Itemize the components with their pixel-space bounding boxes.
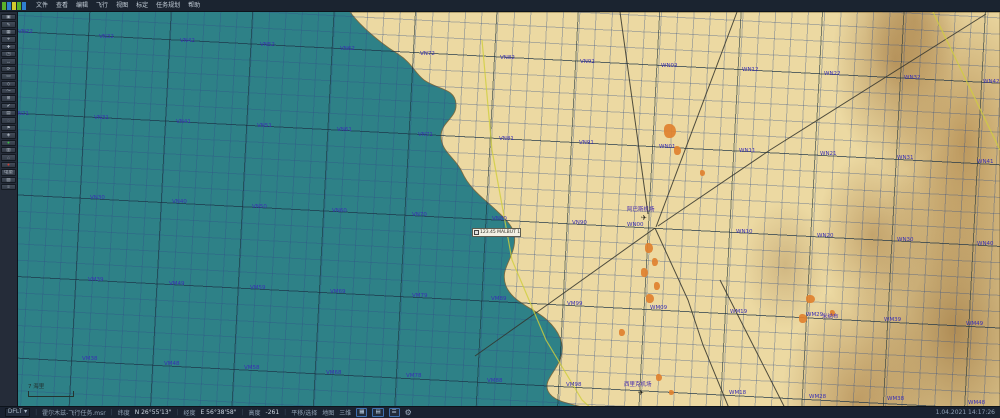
layer-toggle-button[interactable]: ▦	[356, 408, 367, 417]
tool-button[interactable]: ◌	[1, 117, 16, 123]
tool-button[interactable]: ✔	[1, 103, 16, 109]
logo-block	[22, 2, 26, 10]
profile-select[interactable]: DFLT ▾	[5, 408, 30, 417]
map-canvas[interactable]: VN22VN32VN42VN52VN62VN72VN82VN92WN02WN12…	[0, 0, 1000, 418]
map-mode-label: 地图	[322, 408, 334, 417]
tool-button[interactable]: ◳	[1, 51, 16, 57]
divider: |	[111, 409, 113, 416]
menu-item[interactable]: 文件	[32, 0, 52, 12]
tool-button[interactable]: ⊞	[1, 95, 16, 101]
menu-item[interactable]: 标定	[132, 0, 152, 12]
logo-block	[7, 2, 11, 10]
altitude-label: 高度	[249, 408, 261, 417]
tool-button[interactable]: 电量	[1, 169, 16, 175]
app-window: VN22VN32VN42VN52VN62VN72VN82VN92WN02WN12…	[0, 0, 1000, 418]
tool-button[interactable]: ▭	[1, 73, 16, 79]
tool-button[interactable]: ▣	[1, 14, 16, 20]
menu-item[interactable]: 飞行	[92, 0, 112, 12]
longitude-value: E 56°38'58"	[200, 409, 236, 416]
latitude-value: N 26°55'13"	[135, 409, 172, 416]
tool-button[interactable]: ⚑	[1, 125, 16, 131]
cursor-mode-label: 平移/选择	[291, 408, 317, 417]
open-file-name: 霍尔木兹-飞行任务.msr	[42, 408, 106, 417]
grid-toggle-button[interactable]: ▤	[372, 408, 383, 417]
coastline-land-shape	[0, 0, 1000, 418]
tool-button[interactable]: ⟳	[1, 66, 16, 72]
tool-button[interactable]: ●	[1, 162, 16, 168]
tool-button[interactable]: ▥	[1, 147, 16, 153]
datetime: 1.04.2021 14:17:26	[936, 409, 995, 416]
divider: |	[35, 409, 37, 416]
divider: |	[242, 409, 244, 416]
menu-item[interactable]: 任务规划	[152, 0, 184, 12]
tool-button[interactable]: ▨	[1, 177, 16, 183]
tool-button[interactable]: ▤	[1, 110, 16, 116]
tool-button[interactable]: ↔	[1, 58, 16, 64]
tool-button[interactable]: ⌖	[1, 36, 16, 42]
logo-block	[2, 2, 6, 10]
menu-item[interactable]: 编辑	[72, 0, 92, 12]
list-toggle-button[interactable]: ☰	[389, 408, 400, 417]
menu-bar: 文件查看编辑飞行视图标定任务规划帮助	[0, 0, 1000, 12]
logo-block	[17, 2, 21, 10]
tool-button[interactable]: ✚	[1, 44, 16, 50]
logo-block	[12, 2, 16, 10]
menu-item[interactable]: 查看	[52, 0, 72, 12]
tool-button[interactable]: ≡	[1, 184, 16, 190]
main-menu: 文件查看编辑飞行视图标定任务规划帮助	[32, 0, 204, 12]
longitude-label: 经度	[183, 408, 195, 417]
menu-item[interactable]: 视图	[112, 0, 132, 12]
latitude-label: 纬度	[118, 408, 130, 417]
tool-button[interactable]: ⌂	[1, 154, 16, 160]
divider: |	[176, 409, 178, 416]
divider: |	[284, 409, 286, 416]
view-3d-label: 三维	[339, 408, 351, 417]
tool-button[interactable]: ●	[1, 140, 16, 146]
tool-button[interactable]: 〜	[1, 88, 16, 94]
status-bar: DFLT ▾ | 霍尔木兹-飞行任务.msr | 纬度 N 26°55'13" …	[0, 406, 1000, 418]
tool-button[interactable]: ▦	[1, 29, 16, 35]
tool-button[interactable]: ◈	[1, 132, 16, 138]
gear-icon[interactable]: ⚙	[405, 408, 412, 417]
app-logo	[2, 2, 26, 10]
tool-button[interactable]: ◇	[1, 81, 16, 87]
left-toolbar: ▣✎▦⌖✚◳↔⟳▭◇〜⊞✔▤◌⚑◈●▥⌂●电量▨≡	[0, 12, 18, 406]
tool-button[interactable]: ✎	[1, 21, 16, 27]
menu-item[interactable]: 帮助	[184, 0, 204, 12]
altitude-value: -261	[266, 409, 280, 416]
